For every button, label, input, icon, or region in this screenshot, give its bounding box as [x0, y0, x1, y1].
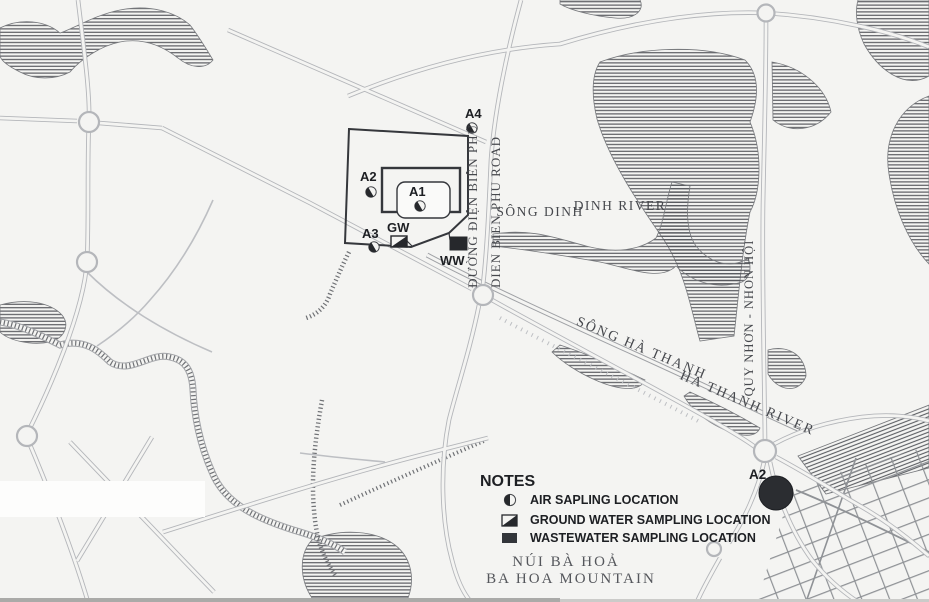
label-a3: A3 [362, 226, 379, 241]
roundabout-west [77, 252, 97, 272]
label-a2-city: A2 [749, 467, 766, 482]
roundabout-southwest [17, 426, 37, 446]
roundabout-southeast [754, 440, 776, 462]
map-canvas: A4 A2 A1 A3 GW WW A2 ĐƯỜNG ĐIỆN BIÊN PHỦ… [0, 0, 929, 602]
label-ba-hoa-mountain: BA HOA MOUNTAIN [486, 571, 656, 587]
legend-item-wastewater: WASTEWATER SAMPLING LOCATION [530, 531, 756, 545]
label-ww: WW [440, 253, 465, 268]
scan-white-band [0, 481, 205, 517]
roundabout-north [758, 5, 775, 22]
label-quy-nhon-nhon-hoi: QUY NHƠN - NHON HỘI [742, 240, 756, 397]
roundabout-northwest [79, 112, 99, 132]
legend-item-ground-water: GROUND WATER SAMPLING LOCATION [530, 513, 771, 527]
wastewater-sampling-icon [502, 533, 517, 543]
label-song-dinh: SÔNG DINH [496, 204, 583, 219]
label-a1: A1 [409, 184, 426, 199]
label-a4: A4 [465, 106, 482, 121]
label-duong-dien-bien-phu: ĐƯỜNG ĐIỆN BIÊN PHỦ [465, 124, 480, 288]
label-dinh-river: DINH RIVER [574, 198, 667, 213]
scan-edge-dark [0, 598, 560, 602]
label-nui-ba-hoa: NÚI BÀ HOẢ [512, 553, 620, 570]
label-a2: A2 [360, 169, 377, 184]
legend-item-air: AIR SAPLING LOCATION [530, 493, 678, 507]
ground-water-sampling-icon [502, 515, 517, 526]
label-gw: GW [387, 220, 410, 235]
legend-title: NOTES [480, 473, 535, 490]
air-sampling-icon [504, 494, 515, 505]
scanned-map: A4 A2 A1 A3 GW WW A2 ĐƯỜNG ĐIỆN BIÊN PHỦ… [0, 0, 929, 602]
ground-water-marker [391, 236, 407, 247]
